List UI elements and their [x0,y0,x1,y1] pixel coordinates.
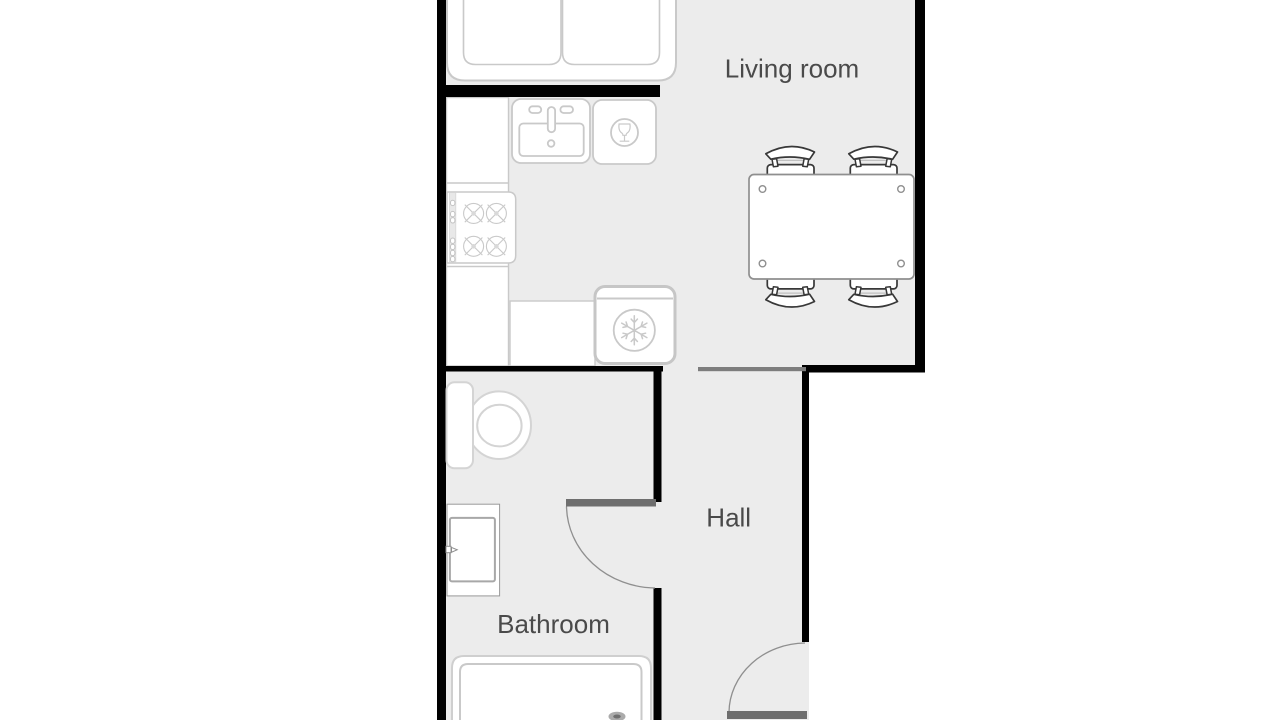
svg-text:Living room: Living room [725,54,859,84]
svg-text:Bathroom: Bathroom [497,609,610,639]
svg-text:Hall: Hall [706,502,751,532]
